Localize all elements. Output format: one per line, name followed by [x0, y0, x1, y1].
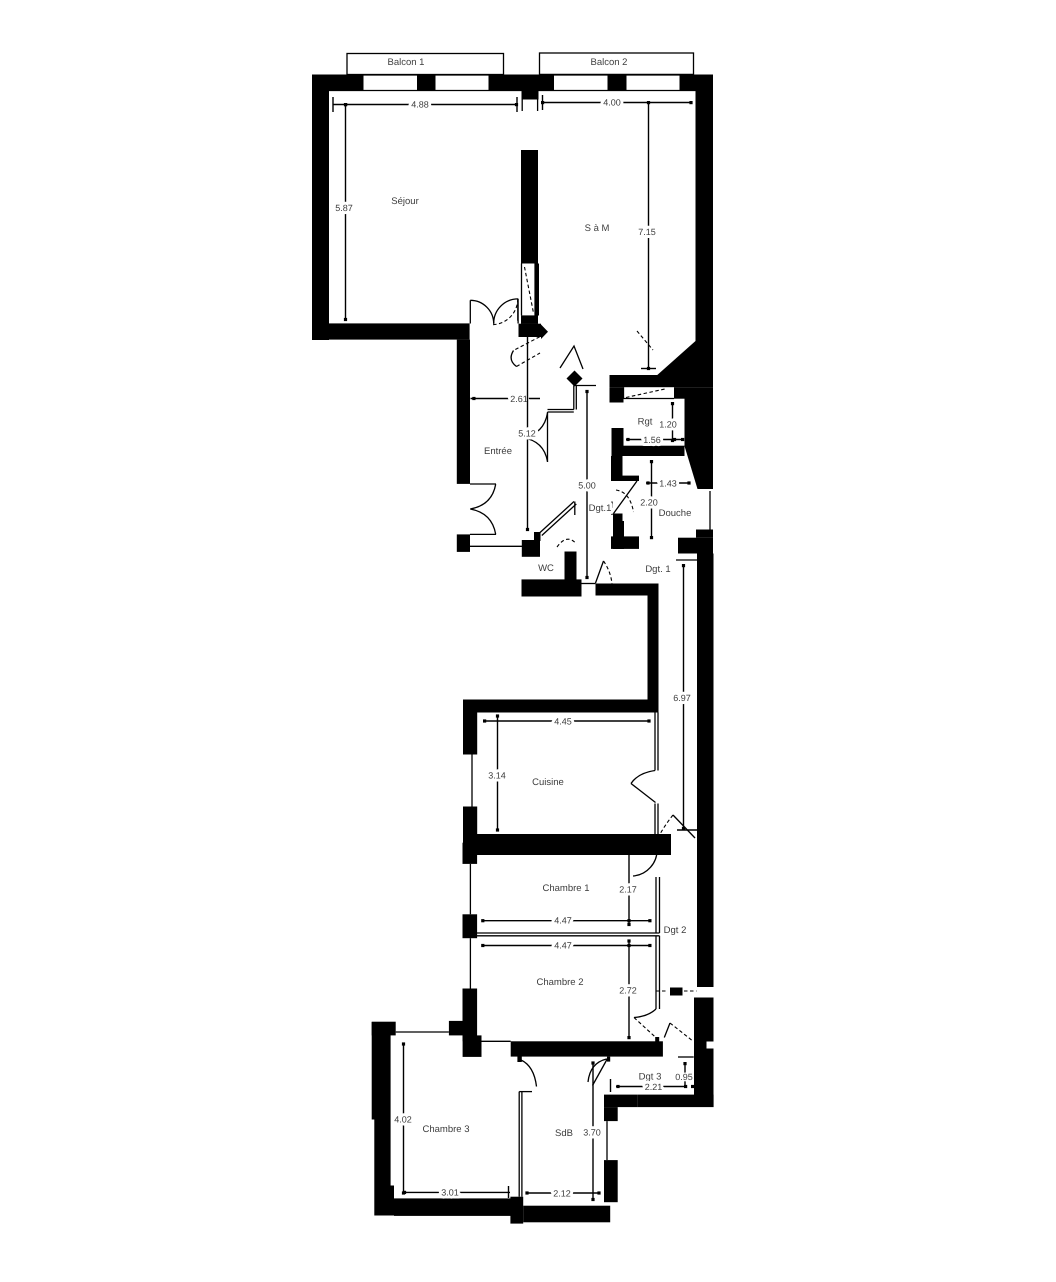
svg-text:Séjour: Séjour [391, 196, 418, 207]
svg-text:3.14: 3.14 [488, 771, 506, 781]
svg-text:4.88: 4.88 [411, 100, 429, 110]
svg-text:Balcon 1: Balcon 1 [388, 57, 425, 68]
svg-text:Entrée: Entrée [484, 446, 512, 457]
svg-text:4.00: 4.00 [603, 98, 621, 108]
svg-text:5.12: 5.12 [518, 429, 536, 439]
svg-text:0.95: 0.95 [675, 1072, 693, 1082]
svg-text:Chambre 1: Chambre 1 [543, 883, 590, 894]
svg-text:SdB: SdB [555, 1128, 573, 1139]
svg-text:5.87: 5.87 [335, 203, 353, 213]
svg-text:Rgt: Rgt [638, 417, 653, 428]
svg-text:1.56: 1.56 [643, 435, 661, 445]
svg-text:2.72: 2.72 [619, 986, 637, 996]
svg-text:5.00: 5.00 [578, 481, 596, 491]
svg-text:S à M: S à M [585, 223, 610, 234]
svg-text:4.47: 4.47 [554, 941, 572, 951]
svg-text:7.15: 7.15 [638, 227, 656, 237]
svg-text:6.97: 6.97 [673, 693, 691, 703]
svg-text:4.02: 4.02 [394, 1115, 412, 1125]
svg-text:Balcon 2: Balcon 2 [591, 57, 628, 68]
svg-text:2.61: 2.61 [510, 394, 528, 404]
svg-text:2.21: 2.21 [645, 1082, 663, 1092]
svg-text:Chambre 3: Chambre 3 [423, 1124, 470, 1135]
svg-text:2.17: 2.17 [619, 885, 637, 895]
svg-text:Douche: Douche [659, 508, 692, 519]
svg-text:WC: WC [538, 563, 554, 574]
svg-text:4.45: 4.45 [554, 717, 572, 727]
svg-text:Dgt. 1: Dgt. 1 [645, 564, 670, 575]
svg-text:Dgt 3: Dgt 3 [639, 1072, 662, 1083]
svg-text:Dgt.1: Dgt.1 [589, 503, 612, 514]
svg-text:3.01: 3.01 [441, 1188, 459, 1198]
svg-text:Dgt 2: Dgt 2 [664, 925, 687, 936]
svg-text:2.12: 2.12 [553, 1189, 571, 1199]
svg-text:3.70: 3.70 [583, 1128, 601, 1138]
svg-text:1.43: 1.43 [659, 479, 677, 489]
svg-text:Chambre 2: Chambre 2 [537, 977, 584, 988]
svg-text:4.47: 4.47 [554, 916, 572, 926]
svg-text:Cuisine: Cuisine [532, 777, 564, 788]
svg-text:1.20: 1.20 [659, 420, 677, 430]
svg-text:2.20: 2.20 [640, 498, 658, 508]
